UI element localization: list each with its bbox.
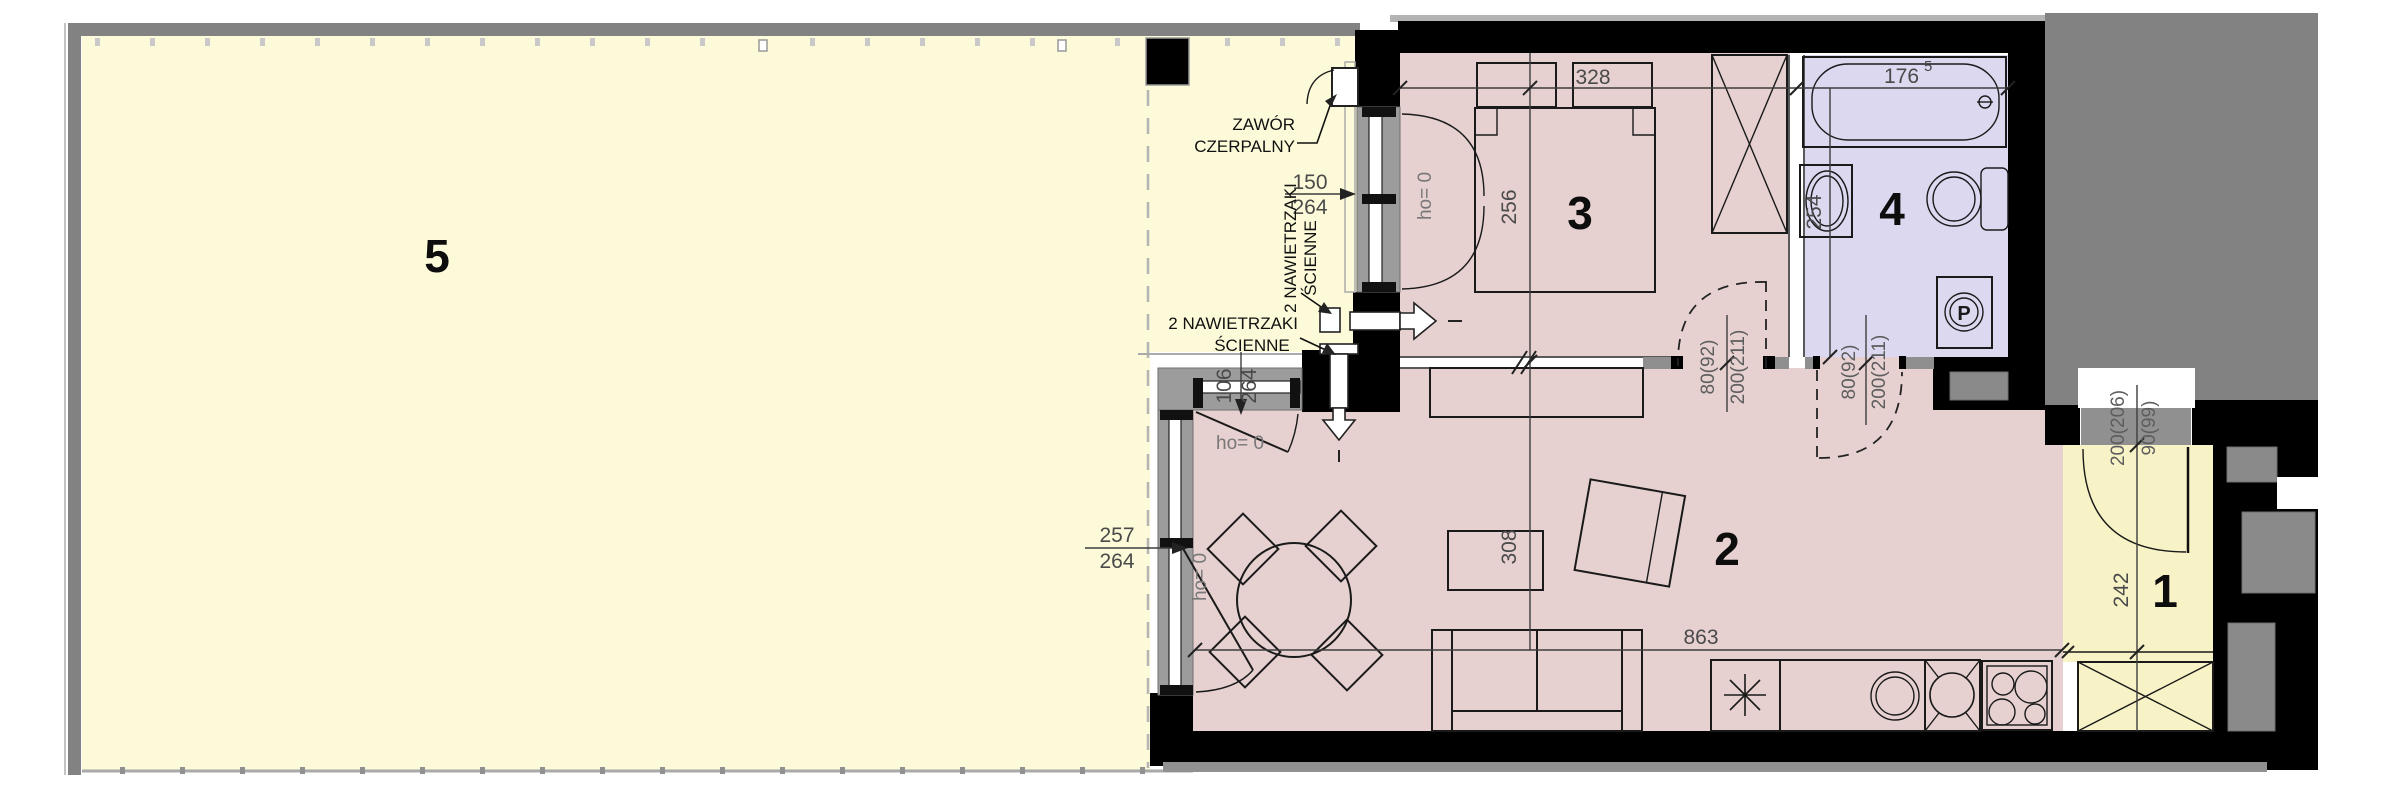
- wall-top-edge: [1390, 15, 2045, 22]
- dim-entry-door-h: 200(206): [2108, 390, 2129, 466]
- valve-label-line1: ZAWÓR: [1232, 115, 1295, 134]
- ho-label-table: ho= 0: [1190, 553, 1211, 601]
- room-label-1: 1: [2152, 565, 2178, 617]
- dim-bedroom-door-w: 80(92): [1698, 340, 1719, 395]
- shaft-small: [1950, 372, 2008, 400]
- washer-symbol: P: [1957, 303, 1970, 325]
- shaft-notch: [2277, 477, 2318, 509]
- hall-floor: [2063, 445, 2213, 731]
- dim-bed-depth: 256: [1498, 189, 1521, 224]
- dim-living-depth: 308: [1498, 529, 1521, 564]
- bottom-slab-edge: [1163, 762, 2267, 772]
- room-label-3: 3: [1567, 187, 1593, 239]
- dim-entry-door-w: 90(99): [2139, 401, 2160, 456]
- terrace-left-slab: [68, 23, 81, 775]
- railing-post: [1058, 40, 1066, 51]
- bedroom-floor: [1400, 53, 1790, 357]
- dim-corner-window-h: 264: [1238, 368, 1261, 403]
- ho-label-bedroom: ho= 0: [1415, 172, 1436, 220]
- building-mass: [2045, 13, 2318, 405]
- vent-label-h-line1: 2 NAWIETRZAKI: [1168, 314, 1298, 333]
- shaft-1: [2227, 447, 2277, 482]
- room-label-4: 4: [1879, 183, 1905, 235]
- dim-living-width: 863: [1683, 626, 1718, 649]
- dim-bed-width: 328: [1575, 66, 1610, 89]
- shaft-2: [2242, 512, 2315, 593]
- dim-corner-window-w: 106: [1213, 368, 1236, 403]
- fridge-star-icon: [1724, 674, 1766, 716]
- dim-bedroom-door-h: 200(211): [1728, 330, 1749, 405]
- dim-bath-width: 176: [1884, 65, 1919, 88]
- dim-bath-door-w: 80(92): [1839, 345, 1860, 400]
- terrace-pillar: [1146, 38, 1189, 85]
- dim-bath-depth: 254: [1803, 194, 1826, 229]
- dim-terrace-door-h: 264: [1099, 550, 1134, 573]
- dim-terrace-door-w: 257: [1099, 524, 1134, 547]
- room-label-5: 5: [424, 230, 450, 282]
- dim-bath-width-sup: 5: [1924, 58, 1932, 75]
- dim-bath-door-h: 200(211): [1869, 335, 1890, 410]
- floor-plan: 5 3 2 4 1 328 176 5 863 150 264 257 264 …: [0, 0, 2385, 797]
- vent-label-h-line2: ŚCIENNE: [1214, 336, 1290, 355]
- room-label-2: 2: [1714, 523, 1740, 575]
- ho-label-corner: ho= 0: [1216, 433, 1264, 454]
- shaft-3: [2228, 623, 2275, 731]
- railing-post: [759, 40, 767, 51]
- terrace-top-slab: [68, 23, 1360, 36]
- dim-hall-depth: 242: [2110, 572, 2133, 607]
- valve-label-line2: CZERPALNY: [1194, 137, 1295, 156]
- vent-label-v-line1: 2 NAWIETRZAKI: [1281, 183, 1300, 313]
- vent-label-v-line2: ŚCIENNE: [1301, 220, 1320, 296]
